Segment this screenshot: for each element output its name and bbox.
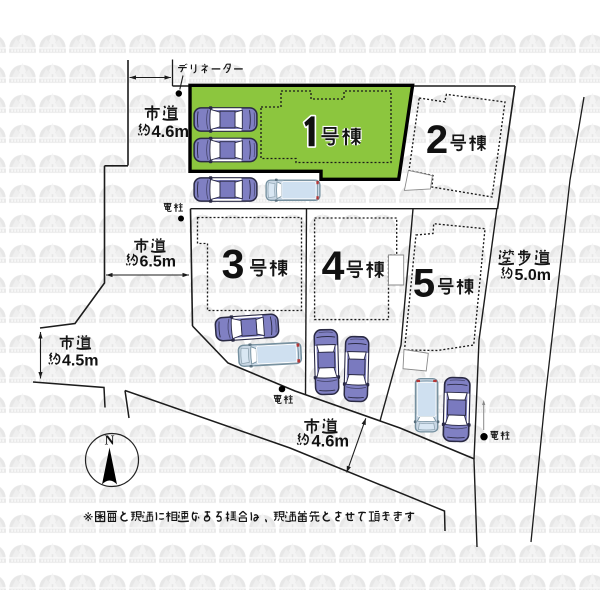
svg-text:5.0m: 5.0m [515, 267, 551, 284]
svg-text:4.5m: 4.5m [62, 353, 98, 370]
svg-text:2: 2 [426, 118, 448, 162]
svg-text:4: 4 [322, 243, 345, 289]
svg-text:6.5m: 6.5m [140, 254, 176, 271]
svg-text:3: 3 [222, 241, 245, 287]
svg-text:4.6m: 4.6m [152, 123, 190, 141]
svg-text:4.6m: 4.6m [312, 433, 350, 451]
svg-text:N: N [105, 433, 115, 448]
svg-text:5: 5 [413, 262, 435, 306]
